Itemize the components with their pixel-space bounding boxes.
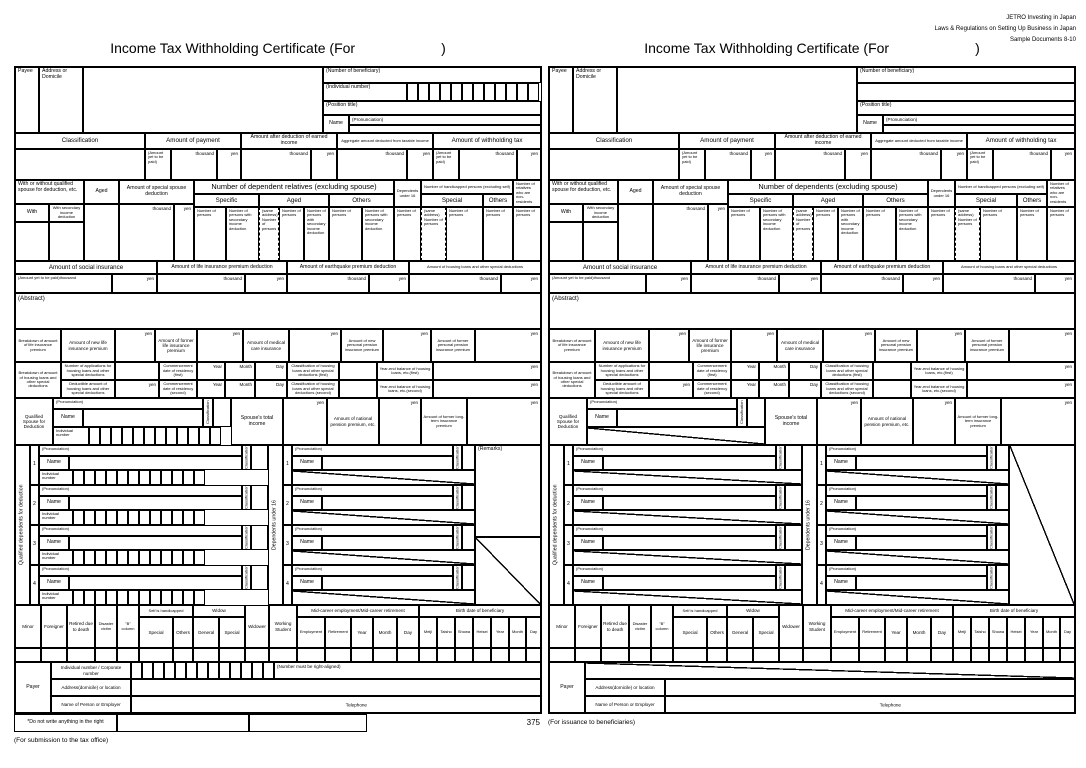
withholding-yen-field: yen [517, 149, 541, 180]
form-tax-office: Income Tax Withholding Certificate (For)… [14, 40, 542, 744]
digit-cell [95, 470, 106, 485]
meiji-label: Meiji [953, 617, 971, 648]
employment-field [831, 648, 859, 662]
month-label: Month [509, 617, 526, 648]
under16-header: Dependents under 16 [394, 180, 421, 207]
others-header: Others [1017, 194, 1047, 207]
classification-vertical-label: Classification [737, 398, 747, 427]
classification-field [462, 565, 475, 590]
yen-unit: yen [1065, 276, 1072, 281]
year-label: Year [491, 617, 509, 648]
payee-label: Payee [549, 67, 573, 133]
digit-cell [128, 550, 139, 565]
status-section: Minor Foreigner Retired due to death Dis… [549, 605, 1075, 662]
name-label: Name [292, 536, 322, 550]
yen-unit: yen [145, 331, 152, 336]
birthdate-header: Birth date of beneficiary [953, 605, 1075, 617]
month-unit: Month [239, 382, 252, 387]
month-field [1043, 648, 1060, 662]
digit-cell [106, 550, 117, 565]
corporate-number-label: Individual number / Corporate number [51, 662, 131, 679]
heisei-label: Heisei [1007, 617, 1025, 648]
form-title: Income Tax Withholding Certificate (For) [14, 40, 542, 66]
name-label: Name [826, 496, 856, 510]
row-number: 4 [817, 565, 826, 605]
special-label: Special [219, 617, 245, 648]
thousand-unit: thousand [686, 206, 705, 211]
aggregate-thousand-field: thousand [871, 149, 941, 180]
crossed-out-cell [292, 550, 475, 565]
dependent-row: 1 (Pronunciation) Name Classification [564, 445, 802, 485]
dependents-rows-section: Qualified dependents for deduction 1 (Pr… [549, 445, 1075, 605]
loan-class-second-label: Classification of housing loans and othe… [287, 380, 339, 398]
former-life-field: yen [731, 329, 777, 362]
month-unit: Month [239, 364, 252, 369]
balance-first-label: Year-end balance of housing loans, etc.(… [911, 362, 967, 380]
yen-unit: yen [531, 331, 538, 336]
name-label: Name [323, 115, 349, 133]
yen-unit: yen [331, 331, 338, 336]
pronunciation-label: (Pronunciation) [883, 115, 1075, 125]
number-of-persons-cell: Number of persons [728, 207, 760, 261]
name-label: Name [826, 576, 856, 590]
former-pension-label: Amount of former personal pension insura… [965, 329, 1009, 362]
former-life-field: yen [197, 329, 243, 362]
thousand-unit: thousand [289, 151, 308, 156]
digit-cell [161, 550, 172, 565]
remarks-box: (Remarks) [475, 445, 541, 537]
row-number: 2 [30, 485, 39, 525]
withholding-yen-field: yen [1051, 149, 1075, 180]
form-beneficiary: Income Tax Withholding Certificate (For)… [548, 40, 1076, 726]
yen-unit: yen [233, 331, 240, 336]
retirement-field [325, 648, 351, 662]
special-spouse-yen-field: yen [708, 204, 728, 261]
payer-label: Payer [15, 662, 51, 713]
telephone-label: Telephone [346, 702, 367, 707]
taisho-field [971, 648, 989, 662]
after-thousand-field: thousand [775, 149, 845, 180]
b-column-label: "B" column [117, 605, 139, 648]
longterm-premium-field: yen [1001, 398, 1075, 445]
amount-yet-label: (Amount yet to be paid) [145, 149, 171, 180]
same-address-cell: (same address) Number of persons [793, 207, 813, 261]
longterm-premium-field: yen [467, 398, 541, 445]
telephone-label: Telephone [880, 702, 901, 707]
day-unit: Day [276, 364, 284, 369]
name-label: Name [292, 576, 322, 590]
digit-cell [175, 662, 186, 679]
retired-death-label: Retired due to death [601, 605, 629, 648]
day-field [526, 648, 541, 662]
crossed-out-cell [826, 470, 1009, 485]
name-label: Name [857, 115, 883, 133]
digit-cell [73, 470, 84, 485]
day-label: Day [1060, 617, 1075, 648]
midcareer-header: Mid-career employment/Mid-career retirem… [831, 605, 953, 617]
aged-header: Aged [793, 194, 863, 207]
digit-cell [73, 550, 84, 565]
payer-name-field: Telephone [665, 696, 1075, 713]
classification-field [15, 149, 145, 180]
payer-section: Payer Address(domicile) or location Name… [549, 662, 1075, 713]
special-field [673, 648, 707, 662]
abstract-section: (Abstract) [15, 293, 541, 329]
with-label: With [549, 204, 583, 222]
thousand-unit: thousand [1029, 151, 1048, 156]
number-of-persons-cell: Number of persons [813, 207, 838, 261]
loan-class-first-field [873, 362, 911, 380]
month-field [509, 648, 526, 662]
yen-unit: yen [811, 276, 818, 281]
special-header: Special [955, 194, 1017, 207]
classification-vertical-label: Classification [987, 525, 996, 550]
qualified-spouse-label: Qualified Spouse for Deduction [15, 398, 53, 445]
aggregate-thousand-field: thousand [337, 149, 407, 180]
digit-cell [89, 427, 100, 445]
classification-vertical-label: Classification [776, 445, 785, 470]
digit-cell [183, 550, 194, 565]
classification-vertical-label: Classification [776, 525, 785, 550]
number-of-persons-cell: Number of persons [446, 207, 483, 261]
pronunciation-label: (Pronunciation) [573, 525, 776, 536]
pronunciation-label: (Pronunciation) [39, 565, 242, 576]
digit-cell [161, 590, 172, 605]
digit-cell [139, 470, 150, 485]
digit-cell [208, 662, 219, 679]
day-label: Day [931, 617, 953, 648]
name-label: Name [587, 409, 617, 427]
after-yen-field: yen [845, 149, 871, 180]
housing-loans-header: Amount of housing loans and other specia… [409, 261, 541, 274]
day-field: Day [255, 362, 287, 380]
thousand-unit: thousand [729, 151, 748, 156]
name-field [603, 456, 776, 470]
number-secondary-cell: Number of persons with secondary income … [304, 207, 329, 261]
loan-apps-field [115, 362, 159, 380]
month-field: Month [225, 380, 255, 398]
individual-number-boxes [73, 590, 268, 605]
year-field: Year [731, 380, 759, 398]
nonresident-header: Number of relatives who are non-resident… [1047, 180, 1075, 207]
individual-number-label: Individual number [39, 510, 73, 525]
digit-cell [150, 510, 161, 525]
loan-class-first-label: Classification of housing loans and othe… [821, 362, 873, 380]
digit-cell [506, 83, 517, 101]
office-use-strip: *Do not write anything in the right 375 [14, 714, 542, 732]
qualified-spouse-header: With or without qualified spouse for ded… [549, 180, 618, 204]
special-spouse-thousand-field: thousand [119, 204, 174, 261]
retirement-label: Retirement [859, 617, 885, 648]
name-label: Name [573, 456, 603, 470]
birthdate-header: Birth date of beneficiary [419, 605, 541, 617]
taisho-field [437, 648, 455, 662]
yen-unit: yen [147, 276, 154, 281]
new-life-field: yen [649, 329, 689, 362]
name-field [69, 536, 242, 550]
year-unit: Year [747, 364, 756, 369]
yen-unit: yen [149, 382, 156, 387]
name-label: Name [53, 409, 83, 427]
digit-cell [142, 662, 153, 679]
classification-field [251, 445, 268, 470]
same-address-cell: (same address) Number of persons [259, 207, 279, 261]
disaster-victim-field [629, 648, 651, 662]
classification-field [462, 485, 475, 510]
digit-cell [128, 510, 139, 525]
name-field [322, 456, 453, 470]
classification-vertical-label: Classification [453, 565, 462, 590]
working-student-label: Working Student [803, 605, 831, 648]
general-field [727, 648, 753, 662]
withholding-thousand-field: thousand [459, 149, 517, 180]
medical-care-field: yen [289, 329, 341, 362]
aggregate-deducted-header: Aggregate amount deducted from taxable i… [871, 133, 967, 149]
digit-cell [252, 662, 263, 679]
digit-cell [95, 550, 106, 565]
name-field [856, 456, 987, 470]
social-thousand-cell: (Amount yet to be paid)thousand [15, 274, 112, 293]
yen-unit: yen [231, 151, 238, 156]
foreigner-label: Foreigner [41, 605, 67, 648]
thousand-unit: thousand [347, 276, 366, 281]
digit-cell [194, 470, 205, 485]
taisho-label: Taisho [437, 617, 455, 648]
digit-cell [462, 83, 473, 101]
others-header: Others [483, 194, 513, 207]
year-field [351, 648, 373, 662]
pronunciation-label: (Pronunciation) [292, 565, 453, 576]
digit-cell [186, 662, 197, 679]
classification-vertical-label: Classification [776, 485, 785, 510]
digit-cell [166, 427, 177, 445]
month-field [907, 648, 931, 662]
crossed-out-cell [475, 537, 541, 605]
classification-vertical-label: Classification [453, 485, 462, 510]
digit-cell [183, 510, 194, 525]
number-of-persons-cell: Number of persons [928, 207, 955, 261]
qualified-dependents-vertical-label: Qualified dependents for deduction [549, 445, 564, 605]
life-yen-field: yen [779, 274, 821, 293]
thousand-unit: thousand [919, 151, 938, 156]
special-spouse-deduction-header: Amount of special spouse deduction [119, 180, 194, 204]
thousand-unit: thousand [881, 276, 900, 281]
balance-first-label: Year-end balance of housing loans, etc.(… [377, 362, 433, 380]
digit-cell [144, 427, 155, 445]
balance-second-field: yen [967, 380, 1075, 398]
commencement-second-label: Commencement date of residency (second) [159, 380, 197, 398]
month-field [373, 648, 397, 662]
life-thousand-field: thousand [157, 274, 245, 293]
with-field [549, 222, 583, 261]
national-pension-field: yen [379, 398, 421, 445]
special-label: Special [139, 617, 173, 648]
new-pension-field: yen [917, 329, 965, 362]
disaster-victim-label: Disaster victim [95, 605, 117, 648]
digit-cell [100, 427, 111, 445]
insurance-section: Amount of social insurance (Amount yet t… [15, 261, 541, 293]
classification-vertical-label: Classification [453, 445, 462, 470]
digit-cell [84, 510, 95, 525]
number-of-persons-cell: Number of persons [279, 207, 304, 261]
commencement-first-label: Commencement date of residency (first) [693, 362, 731, 380]
header-line: Laws & Regulations on Setting Up Busines… [935, 24, 1076, 35]
pronunciation-label: (Pronunciation) [826, 525, 987, 536]
yen-unit: yen [957, 151, 964, 156]
former-pension-field: yen [1009, 329, 1075, 362]
year-unit: Year [213, 364, 222, 369]
do-not-write-note: *Do not write anything in the right [14, 714, 117, 732]
amount-of-payment-header: Amount of payment [679, 133, 775, 149]
crossed-out-cell [826, 590, 1009, 605]
special-label: Special [673, 617, 707, 648]
spouse-total-income-field: yen [817, 398, 861, 445]
individual-number-label: (Individual number) [323, 83, 407, 101]
spouse-total-income-label: Spouse's total income [765, 398, 817, 445]
thousand-unit: thousand [195, 151, 214, 156]
name-label: Name [826, 456, 856, 470]
crossed-out-cell [573, 510, 802, 525]
loan-breakdown-section: Breakdown of amount of housing loans and… [15, 362, 541, 398]
yen-unit: yen [861, 151, 868, 156]
classification-field [462, 445, 475, 470]
digit-cell [528, 83, 539, 101]
day-field: Day [789, 362, 821, 380]
self-handicapped-header: Self is handicapped [673, 605, 727, 617]
pronunciation-label: (Pronunciation) [292, 445, 453, 456]
widow-header: Widow [193, 605, 245, 617]
name-field [603, 576, 776, 590]
classification-vertical-label: Classification [242, 565, 251, 590]
digit-cell [161, 510, 172, 525]
row-number: 4 [283, 565, 292, 605]
payee-section: Payee Address or Domicile (Number of ben… [549, 67, 1075, 133]
crossed-out-cell [587, 427, 765, 445]
yen-unit: yen [945, 400, 952, 405]
classification-vertical-label: Classification [776, 565, 785, 590]
special-spouse-thousand-field: thousand [653, 204, 708, 261]
special-spouse-yen-field: yen [174, 204, 194, 261]
employment-label: Employment [297, 617, 325, 648]
payer-address-label: Address(domicile) or location [51, 679, 131, 696]
yen-unit: yen [423, 151, 430, 156]
life-thousand-field: thousand [691, 274, 779, 293]
heisei-field [1007, 648, 1025, 662]
pronunciation-label: (Pronunciation) [826, 565, 987, 576]
employment-label: Employment [831, 617, 859, 648]
social-thousand-cell: (Amount yet to be paid)thousand [549, 274, 646, 293]
digit-cell [219, 662, 230, 679]
commencement-first-label: Commencement date of residency (first) [159, 362, 197, 380]
classification-field [747, 398, 765, 427]
year-unit: Year [747, 382, 756, 387]
name-label: Name [39, 576, 69, 590]
specific-header: Specific [194, 194, 259, 207]
digit-cell [194, 510, 205, 525]
foreigner-field [41, 648, 67, 662]
address-field [617, 67, 857, 133]
showa-label: Showa [989, 617, 1007, 648]
digit-cell [139, 550, 150, 565]
payer-label: Payer [549, 662, 585, 713]
loan-apps-label: Number of applications for housing loans… [61, 362, 115, 380]
digit-cell [150, 590, 161, 605]
individual-number-label: Individual number [53, 427, 89, 445]
digit-cell [188, 427, 199, 445]
under16-row: 1 (Pronunciation) Name Classification [283, 445, 475, 485]
day-label: Day [397, 617, 419, 648]
address-label: Address or Domicile [39, 67, 83, 133]
classification-field [785, 565, 802, 590]
retirement-field [859, 648, 885, 662]
digit-cell [131, 662, 142, 679]
name-field [856, 496, 987, 510]
thousand-unit: thousand [1013, 276, 1032, 281]
former-pension-label: Amount of former personal pension insura… [431, 329, 475, 362]
dependent-row: 3 (Pronunciation) Name Classification In… [30, 525, 268, 565]
loan-apps-field [649, 362, 693, 380]
qualified-spouse-section: Qualified Spouse for Deduction (Pronunci… [15, 398, 541, 445]
others-label: Others [707, 617, 727, 648]
year-field: Year [197, 362, 225, 380]
row-number: 4 [564, 565, 573, 605]
digit-cell [473, 83, 484, 101]
b-column-field [117, 648, 139, 662]
row-number: 3 [564, 525, 573, 565]
earthquake-header: Amount of earthquake premium deduction [287, 261, 409, 274]
thousand-unit: thousand [823, 151, 842, 156]
dependents-count-section: With or without qualified spouse for ded… [549, 180, 1075, 261]
name-field [603, 536, 776, 550]
working-student-field [803, 648, 831, 662]
thousand-unit: thousand [757, 276, 776, 281]
widow-header: Widow [727, 605, 779, 617]
payer-name-label: Name of Person or Employer [51, 696, 131, 713]
dependents-count-section: With or without qualified spouse for ded… [15, 180, 541, 261]
yen-unit: yen [531, 382, 538, 387]
balance-first-field: yen [433, 362, 541, 380]
special-label: Special [753, 617, 779, 648]
thousand-unit: thousand [479, 276, 498, 281]
pronunciation-label: (Pronunciation) [39, 525, 242, 536]
with-secondary-label: With secondary income deduction [49, 204, 84, 222]
number-secondary-cell: Number of persons with secondary income … [896, 207, 928, 261]
row-number: 1 [817, 445, 826, 485]
new-pension-label: Amount of new personal pension insurance… [341, 329, 383, 362]
day-unit: Day [276, 382, 284, 387]
quake-thousand-field: thousand [287, 274, 369, 293]
classification-field [785, 485, 802, 510]
name-field [322, 576, 453, 590]
individual-number-label: Individual number [39, 550, 73, 565]
yen-unit: yen [718, 206, 725, 211]
digit-cell [484, 83, 495, 101]
position-title-label: (Position title) [323, 101, 541, 115]
life-breakdown-header: Breakdown of amount of life insurance pr… [549, 329, 595, 362]
digit-cell [84, 470, 95, 485]
month-field: Month [225, 362, 255, 380]
abstract-label: (Abstract) [15, 293, 541, 329]
under16-row: 3 (Pronunciation) Name Classification [817, 525, 1009, 565]
b-column-label: "B" column [651, 605, 673, 648]
classification-field [996, 485, 1009, 510]
heisei-label: Heisei [473, 617, 491, 648]
showa-label: Showa [455, 617, 473, 648]
loan-apps-label: Number of applications for housing loans… [595, 362, 649, 380]
beneficiary-number-label: (Number of beneficiary) [857, 67, 1075, 83]
month-label: Month [1043, 617, 1060, 648]
working-student-field [269, 648, 297, 662]
